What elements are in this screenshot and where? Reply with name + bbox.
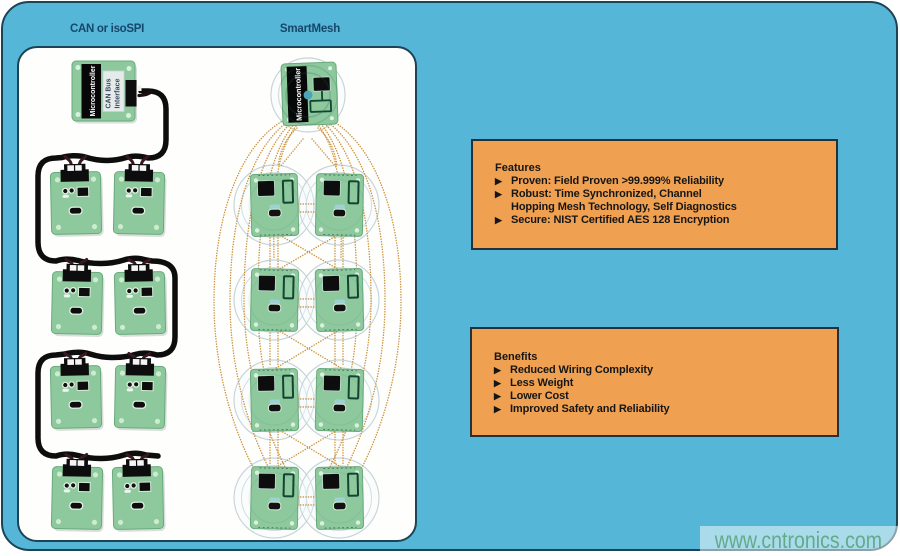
svg-text:Microcontroller: Microcontroller [88, 65, 97, 116]
svg-text:CAN Bus: CAN Bus [106, 78, 113, 108]
svg-text:Interface: Interface [115, 78, 122, 108]
